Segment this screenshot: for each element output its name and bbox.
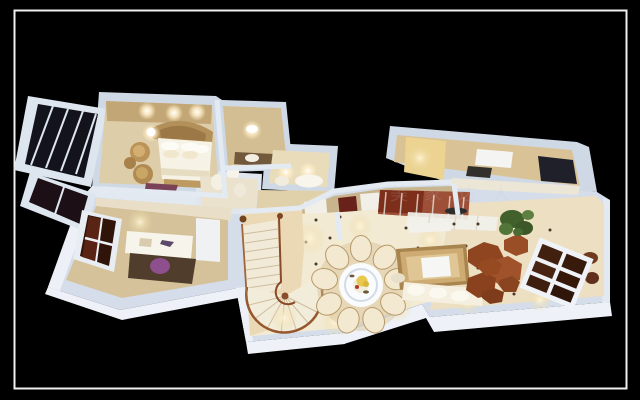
- svg-text:美家达人: 美家达人: [390, 184, 526, 204]
